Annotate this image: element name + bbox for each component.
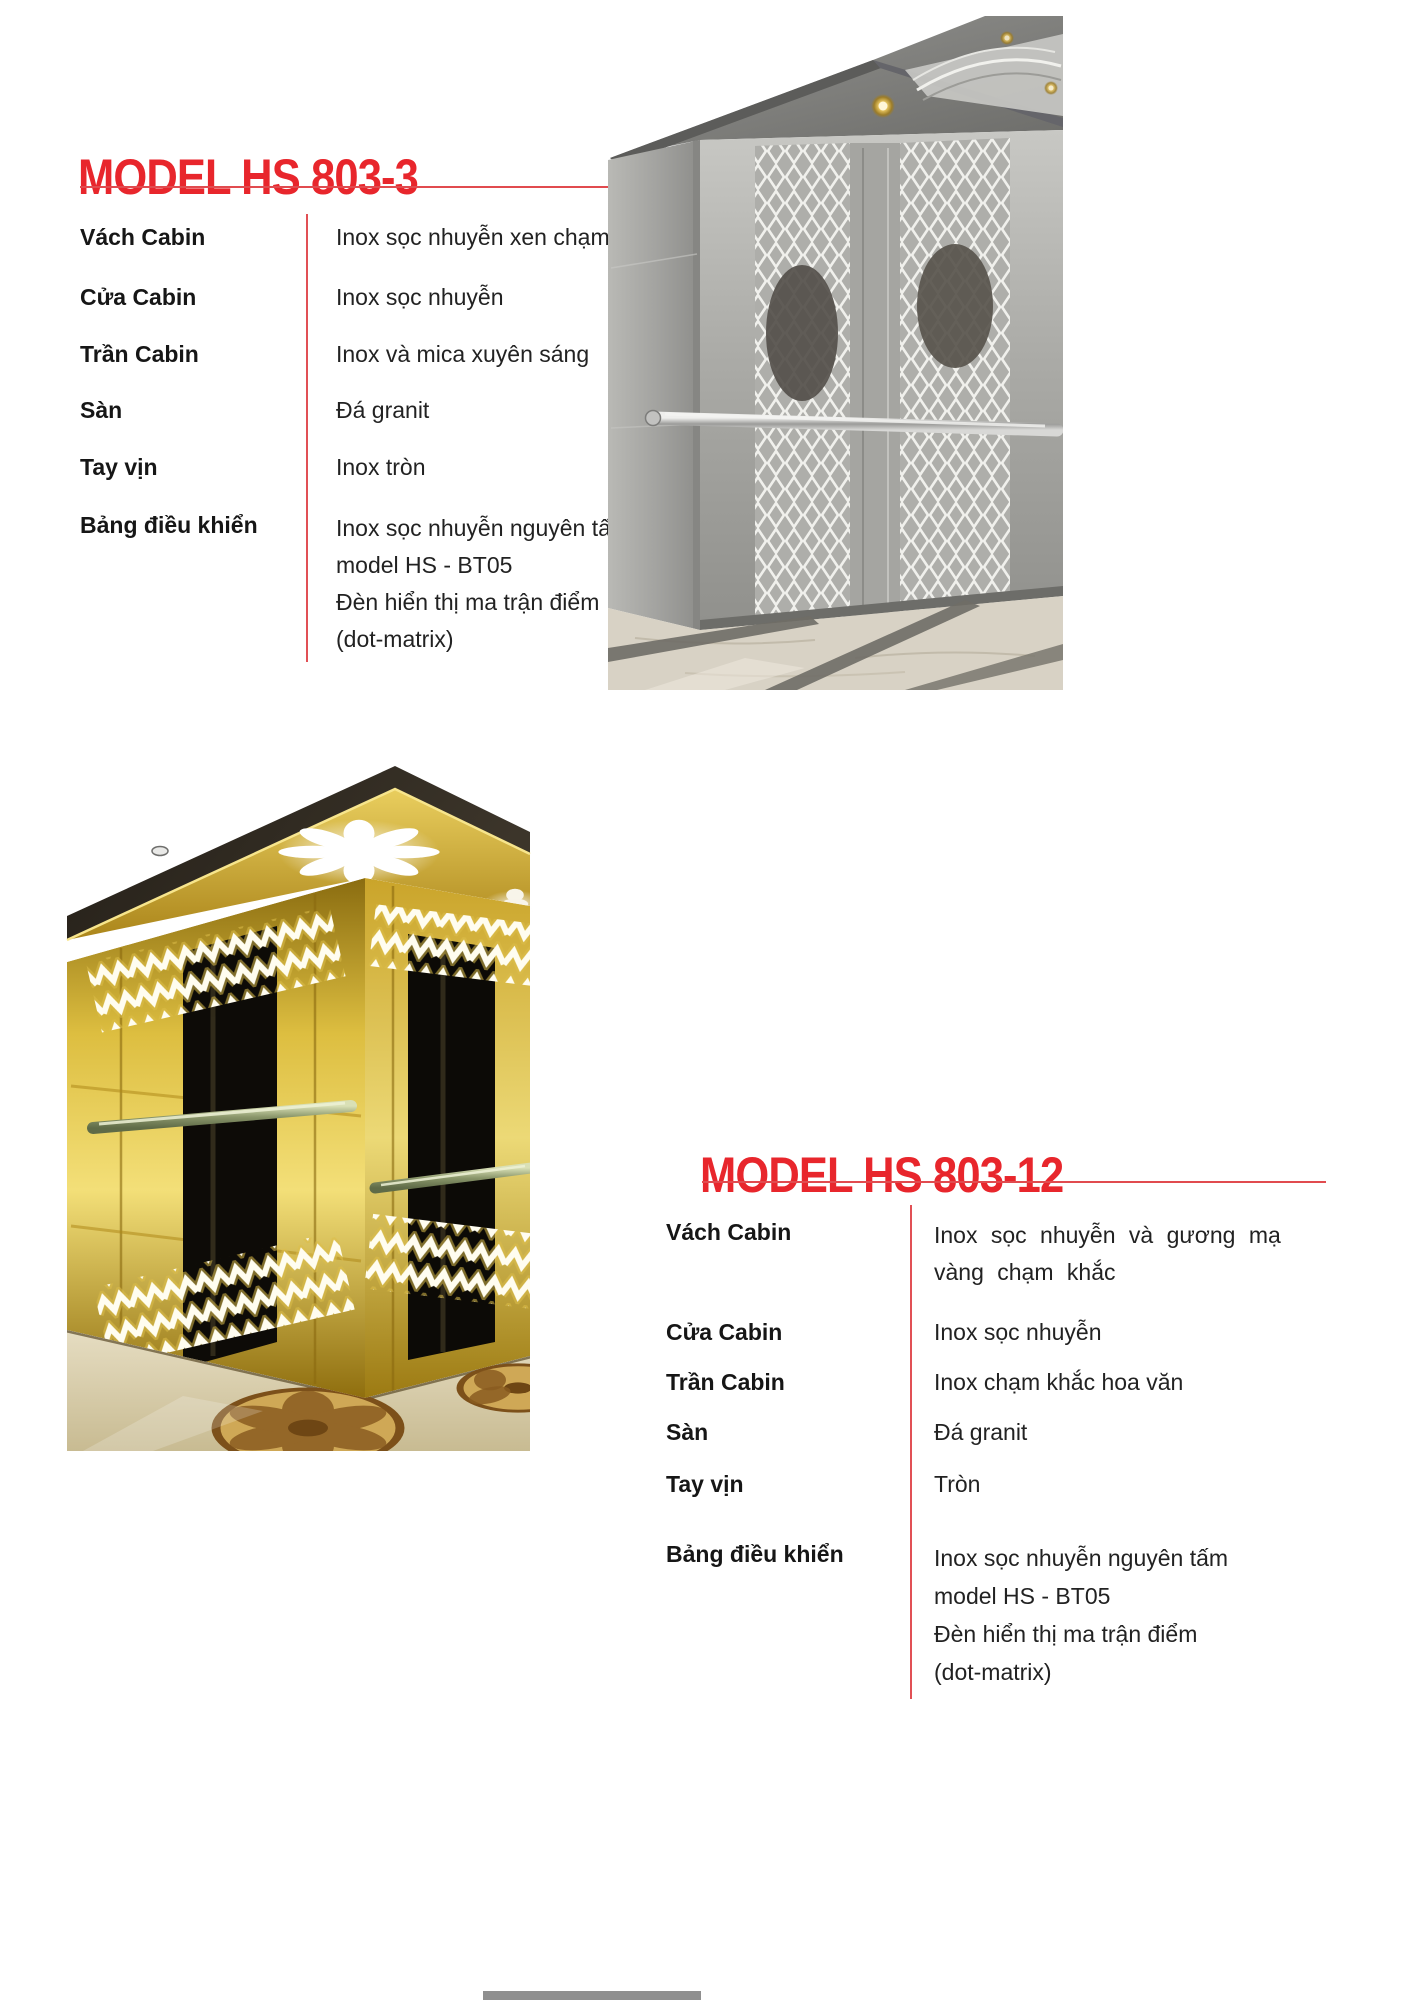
spec-label: Trần Cabin [80,331,306,387]
spec-label: Sàn [666,1405,910,1457]
spec-row-ceiling: Trần Cabin Inox và mica xuyên sáng [80,331,692,387]
spec-value: Tròn [910,1457,1326,1527]
spec-value: Đá granit [910,1405,1326,1457]
spec-row-door: Cửa Cabin Inox sọc nhuyễn [666,1305,1326,1355]
spec-label: Tay vịn [80,444,306,502]
spec-label: Trần Cabin [666,1355,910,1405]
spec-label: Bảng điều khiển [80,502,306,662]
spec-row-floor: Sàn Đá granit [666,1405,1326,1457]
spec-value: Inox chạm khắc hoa văn [910,1355,1326,1405]
spec-row-ceiling: Trần Cabin Inox chạm khắc hoa văn [666,1355,1326,1405]
section-2-title-rule [702,1181,1326,1183]
spec-value: Inox sọc nhuyễn và gương mạ vàng chạm kh… [910,1205,1326,1305]
floor-medallion-large [216,1389,400,1451]
spec-row-wall: Vách Cabin Inox sọc nhuyễn và gương mạ v… [666,1205,1326,1305]
gold-right-wall [364,878,533,1398]
steel-back-wall [700,130,1063,630]
section-1-spec-table: Vách Cabin Inox sọc nhuyễn xen chạm khắc… [80,214,692,662]
downlight-spot [152,847,168,856]
steel-cabin-illustration [605,8,1063,690]
gold-left-wall [67,878,365,1398]
spec-value: Inox sọc nhuyễn [910,1305,1326,1355]
spec-label: Sàn [80,387,306,444]
spec-label: Cửa Cabin [666,1305,910,1355]
spec-label: Cửa Cabin [80,274,306,331]
spec-row-control-panel: Bảng điều khiển Inox sọc nhuyễn nguyên t… [80,502,692,662]
spec-row-handrail: Tay vịn Tròn [666,1457,1326,1527]
spec-value: Inox sọc nhuyễn nguyên tấm model HS - BT… [910,1527,1326,1699]
mesh-panel-oval-left [766,265,838,401]
spec-row-handrail: Tay vịn Inox tròn [80,444,692,502]
section-2-spec-table: Vách Cabin Inox sọc nhuyễn và gương mạ v… [666,1205,1326,1699]
spec-row-floor: Sàn Đá granit [80,387,692,444]
flower-ceiling-light [278,820,439,884]
spec-label: Vách Cabin [80,214,306,274]
elevator-image-hs-803-12 [63,756,533,1451]
page-bottom-image-edge [483,1991,701,2000]
spec-label: Tay vịn [666,1457,910,1527]
elevator-image-hs-803-3 [605,8,1063,690]
steel-left-wall [608,140,700,630]
spec-row-wall: Vách Cabin Inox sọc nhuyễn xen chạm khắc [80,214,692,274]
gold-cabin-illustration [63,756,533,1451]
catalog-page: { "page": {"background": "#ffffff"}, "th… [0,0,1406,2000]
mesh-panel-oval-right [917,244,993,368]
spec-label: Vách Cabin [666,1205,910,1305]
section-1-title: MODEL HS 803-3 [78,152,418,202]
spec-row-control-panel: Bảng điều khiển Inox sọc nhuyễn nguyên t… [666,1527,1326,1699]
section-2-title: MODEL HS 803-12 [700,1150,1063,1200]
spec-row-door: Cửa Cabin Inox sọc nhuyễn [80,274,692,331]
spec-label: Bảng điều khiển [666,1527,910,1699]
